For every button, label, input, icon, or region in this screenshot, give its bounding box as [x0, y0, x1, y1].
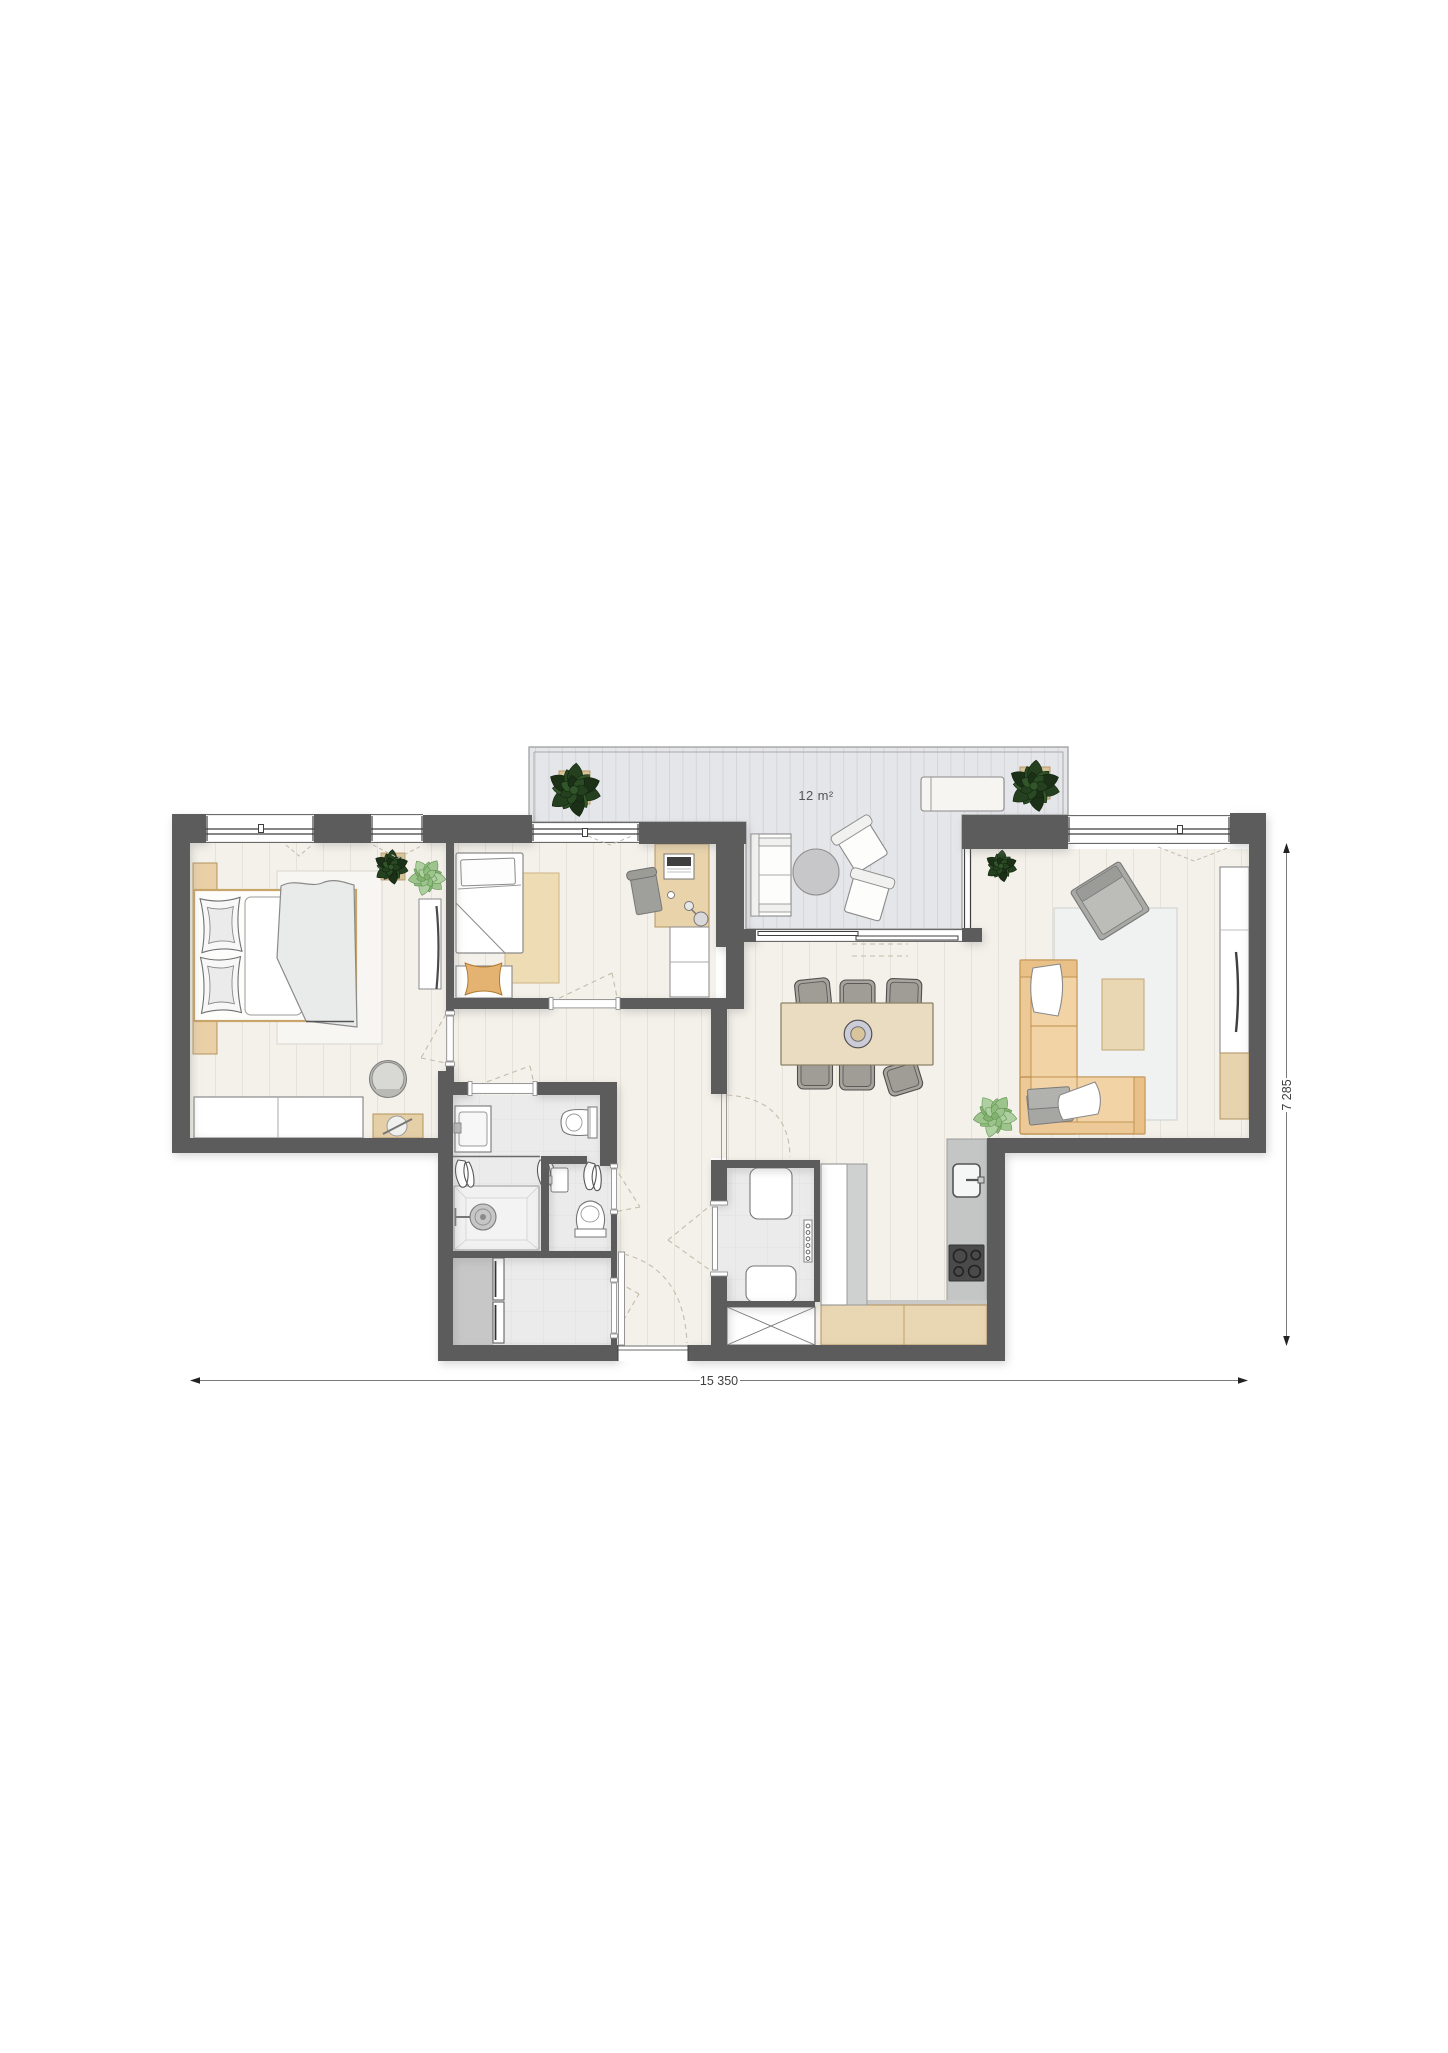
svg-text:15 350: 15 350 [700, 1374, 738, 1388]
svg-text:7 285: 7 285 [1280, 1079, 1294, 1110]
svg-text:12 m²: 12 m² [798, 788, 834, 803]
